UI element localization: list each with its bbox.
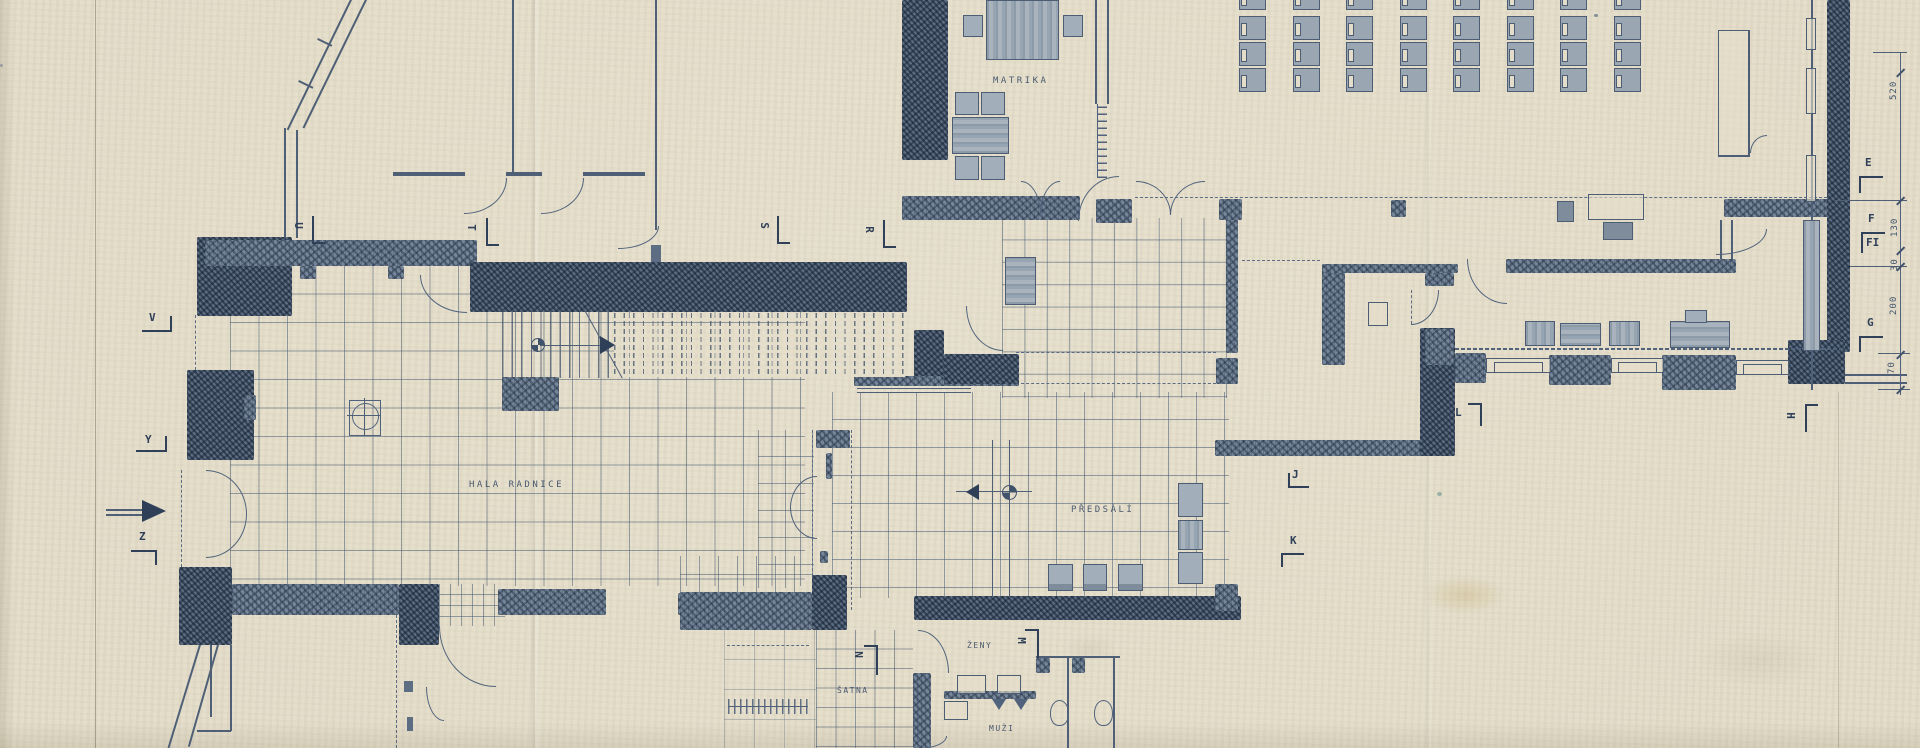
hall-seat-r3-c1	[1293, 68, 1320, 92]
staircase-steps-solid	[502, 310, 614, 378]
beam-dashed-line-vestibule-1	[1016, 352, 1216, 353]
coat-rail-ticks	[728, 699, 808, 714]
hall-seat-r2-c3	[1400, 42, 1427, 66]
section-marker-s-bracket-0	[777, 216, 779, 244]
room-label-hala: HALA RADNICE	[469, 480, 564, 490]
seat-backrest	[1402, 23, 1408, 36]
wall-hall-west-south-block	[179, 567, 232, 645]
hall-seat-r1-c0	[1239, 16, 1266, 40]
chair-matrika-3	[955, 156, 979, 180]
desk-office-2	[1670, 321, 1730, 348]
section-marker-n: N	[852, 651, 865, 658]
floor-vestibule-center	[1002, 218, 1227, 398]
door-arc-office-east	[1716, 229, 1767, 255]
room-label-satna: ŠATNA	[837, 686, 869, 695]
column-hall-circle	[352, 403, 379, 430]
corridor-line-2	[1009, 440, 1010, 598]
stool-predsali-2	[1083, 564, 1107, 591]
chair-matrika-1	[955, 92, 979, 115]
bench-office-2	[1609, 321, 1640, 346]
section-marker-v: V	[149, 311, 156, 324]
seat-backrest	[1348, 75, 1354, 88]
wall-line-rooms-south-b	[506, 172, 542, 176]
hall-seat-r2-c0	[1239, 42, 1266, 66]
stool-matrika-left	[963, 15, 983, 37]
section-marker-n-bracket-1	[864, 645, 877, 647]
hall-seat-r1-c6	[1560, 16, 1587, 40]
dimension-value-200: 200	[1889, 296, 1899, 315]
wall-window-pier-3	[1662, 355, 1736, 390]
wall-pier-hall-south	[1391, 200, 1406, 217]
wall-line-wc-stall-1	[1067, 658, 1069, 748]
wall-line-matrika-east-b	[1107, 0, 1109, 104]
section-marker-y-bracket-1	[165, 436, 167, 451]
hall-seat-r3-c4	[1453, 68, 1480, 92]
hall-seat-r2-c5	[1507, 42, 1534, 66]
seat-backrest	[1509, 75, 1515, 88]
door-leaf-dashed-wcroom	[1411, 290, 1412, 324]
podium-bighall	[1718, 30, 1750, 157]
section-marker-e: E	[1865, 156, 1872, 169]
section-marker-f: F	[1868, 212, 1875, 225]
chair-matrika-2	[981, 92, 1005, 115]
window-frame-east-2	[1806, 68, 1816, 114]
armchair-predsali-bottom	[1178, 552, 1203, 584]
hall-seat-r3-c5	[1507, 68, 1534, 92]
section-marker-e-bracket-0	[1859, 176, 1883, 178]
bench-vestibule	[1005, 257, 1036, 305]
section-marker-z-bracket-0	[131, 550, 157, 552]
section-marker-l: L	[1455, 406, 1462, 419]
wall-line-matrika-east-a	[1095, 0, 1097, 104]
chair-office	[1685, 310, 1707, 323]
seat-backrest	[1295, 0, 1301, 6]
ink-speck	[1594, 14, 1598, 17]
wall-satna-north-step	[812, 575, 847, 630]
wall-office-north	[1506, 259, 1736, 273]
wall-predsali-north-east	[944, 354, 1019, 384]
section-marker-r-bracket-0	[883, 220, 885, 248]
wall-line-south-facade-b	[1845, 382, 1907, 384]
seat-backrest	[1402, 75, 1408, 88]
wall-predsali-east-pier	[1215, 584, 1238, 611]
door-arc-upper-room-a	[464, 178, 507, 214]
hall-seat-r2-c1	[1293, 42, 1320, 66]
section-marker-t: T	[465, 224, 478, 231]
column-hall-cross-v	[364, 398, 365, 436]
seat-backrest	[1295, 75, 1301, 88]
section-marker-m-bracket-1	[1025, 629, 1038, 631]
hall-seat-r0-c0	[1239, 0, 1266, 10]
section-marker-k-bracket-0	[1281, 553, 1304, 555]
section-marker-j-bracket-0	[1288, 486, 1309, 488]
ext-line-1	[1835, 200, 1907, 201]
seat-backrest	[1455, 0, 1461, 6]
seat-backrest	[1241, 23, 1247, 36]
seat-backrest	[1348, 23, 1354, 36]
ext-line-top	[1873, 52, 1907, 53]
stool-predsali-3	[1118, 564, 1143, 591]
wall-wcroom-block-2	[1425, 329, 1454, 365]
door-arc-vestibule-nw-a	[1021, 181, 1041, 215]
window-sill-2-inner	[1618, 362, 1657, 373]
seat-backrest	[1562, 0, 1568, 6]
wall-hall-north	[205, 240, 477, 266]
wall-pier-hall-north-1	[300, 266, 316, 279]
section-marker-j: J	[1292, 468, 1299, 481]
seat-backrest	[1402, 0, 1408, 6]
wall-pier-below-stairs	[502, 377, 559, 411]
door-arc-room-below-hall	[426, 687, 444, 721]
section-marker-t-bracket-0	[486, 218, 488, 246]
hall-seat-r1-c3	[1400, 16, 1427, 40]
wall-vestibule-east	[1226, 199, 1238, 353]
bench-east-wall	[1803, 220, 1820, 351]
chair-bighall-south-1	[1557, 201, 1574, 222]
wall-line-rooms-south-c	[583, 172, 645, 176]
urinal-2	[1014, 699, 1028, 710]
section-marker-h-bracket-1	[1805, 404, 1818, 406]
wall-window-pier-2	[1549, 355, 1611, 385]
wall-wcroom-block-1	[1425, 273, 1454, 286]
desk-office-1	[1560, 323, 1601, 346]
section-marker-k: K	[1290, 534, 1297, 547]
door-arc-bighall-east	[1750, 135, 1767, 153]
section-marker-y-bracket-0	[136, 450, 167, 452]
door-arc-vestibule-ne-b	[1170, 181, 1205, 215]
seat-backrest	[1509, 49, 1515, 62]
seat-backrest	[1509, 0, 1515, 6]
wall-line-room-divider	[512, 0, 514, 172]
ext-line-3	[1878, 353, 1910, 354]
radiator-ticks	[1097, 104, 1107, 178]
beam-dashed-line-hall-south	[1135, 197, 1827, 198]
seat-backrest	[1562, 75, 1568, 88]
chair-matrika-4	[981, 156, 1005, 180]
dimension-value-70: 70	[1887, 361, 1897, 374]
wall-satna-north	[680, 592, 812, 630]
seat-backrest	[1241, 0, 1247, 6]
room-label-predsali: PŘEDSÁLÍ	[1071, 505, 1134, 515]
wall-predsali-south	[914, 596, 1241, 620]
hall-seat-r0-c4	[1453, 0, 1480, 10]
toilet-2	[1094, 700, 1113, 726]
section-marker-k-bracket-1	[1281, 553, 1283, 567]
door-arc-matrika	[1078, 176, 1119, 221]
seat-backrest	[1295, 23, 1301, 36]
seat-backrest	[1509, 23, 1515, 36]
section-marker-y: Y	[145, 433, 152, 446]
seat-backrest	[1562, 23, 1568, 36]
wall-pier-corridor-2	[826, 453, 832, 479]
desk-matrika	[986, 0, 1059, 60]
wall-bighall-east	[1827, 0, 1850, 352]
hall-seat-r0-c5	[1507, 0, 1534, 10]
dashed-wall-line-corridor-2	[851, 430, 852, 610]
stain-speck-teal	[1437, 492, 1442, 496]
hall-seat-r1-c4	[1453, 16, 1480, 40]
section-marker-h-bracket-0	[1805, 404, 1807, 432]
wall-line-facade-inner	[303, 0, 367, 129]
seat-backrest	[1455, 49, 1461, 62]
dimension-line	[1900, 52, 1901, 395]
floor-predsali	[832, 392, 1229, 598]
seat-backrest	[1402, 49, 1408, 62]
table-matrika	[952, 117, 1009, 154]
armchair-predsali-top	[1178, 483, 1203, 517]
wall-line-west-upper	[284, 128, 286, 238]
floor-plan-sheet: (function(){ const data = JSON.parse(doc…	[0, 0, 1920, 748]
seat-backrest	[1348, 49, 1354, 62]
sink-muzi	[944, 701, 968, 720]
wall-pier-room-below	[404, 681, 413, 692]
dashed-opening-hall-west-lower	[181, 470, 182, 567]
hall-seat-r0-c2	[1346, 0, 1373, 10]
hall-seat-r0-c3	[1400, 0, 1427, 10]
hall-seat-r2-c7	[1614, 42, 1641, 66]
section-marker-u-bracket-0	[312, 216, 314, 244]
seat-backrest	[1616, 75, 1622, 88]
dimension-value-130: 130	[1890, 218, 1900, 237]
section-marker-g-bracket-1	[1859, 336, 1861, 352]
hall-seat-r0-c6	[1560, 0, 1587, 10]
section-marker-z: Z	[139, 530, 146, 543]
section-marker-r-bracket-1	[883, 246, 896, 248]
wall-line-wc-top	[1036, 656, 1120, 658]
section-marker-u-bracket-1	[312, 242, 325, 244]
wall-pier-room-below-2	[407, 717, 413, 731]
wall-hall-south-east-band	[1724, 199, 1835, 217]
dimension-value-520: 520	[1889, 81, 1899, 100]
lintel-line-predsali	[857, 388, 971, 389]
wall-window-pier-1	[1455, 353, 1486, 383]
bench-office-1	[1525, 321, 1555, 346]
sink-zeny-2	[997, 675, 1021, 694]
door-arc-office-west	[1467, 259, 1507, 304]
wall-jk-north	[1215, 440, 1452, 456]
hall-seat-r2-c6	[1560, 42, 1587, 66]
door-arc-zeny	[918, 630, 949, 673]
floor-satna-west	[724, 630, 816, 748]
section-marker-r: R	[863, 226, 876, 233]
wall-vestibule-east-bottom-block	[1216, 358, 1238, 384]
windowsill-wave-line	[1455, 348, 1845, 350]
hall-seat-r2-c4	[1453, 42, 1480, 66]
wall-line-room-sw-step	[197, 730, 231, 732]
seat-backrest	[1616, 49, 1622, 62]
door-arc-muzi	[918, 736, 947, 748]
paper-fold-line-left	[95, 0, 96, 748]
wall-line-sw-inner	[188, 645, 219, 747]
entrance-arrow-tail-a	[106, 509, 144, 511]
survey-point-symbol-1	[1002, 485, 1017, 500]
dashed-opening-hall-west-upper	[195, 315, 196, 370]
seat-backrest	[1295, 49, 1301, 62]
seat-backrest	[1241, 49, 1247, 62]
section-marker-m: M	[1015, 637, 1028, 644]
window-sill-1-inner	[1494, 362, 1543, 373]
wall-hall-south-1	[232, 584, 399, 615]
section-marker-z-bracket-1	[155, 550, 157, 565]
door-arc-recess	[439, 626, 496, 687]
section-marker-e-bracket-1	[1859, 176, 1861, 193]
window-sill-3-inner	[1743, 364, 1782, 375]
wall-line-room-sw-a	[210, 645, 212, 717]
corridor-line-1	[992, 440, 993, 598]
lintel-line-predsali-2	[857, 392, 971, 393]
room-label-muzi: MUŽI	[989, 724, 1014, 733]
section-marker-l-bracket-1	[1480, 403, 1482, 426]
seat-backrest	[1455, 23, 1461, 36]
door-arc-vestibule-ne-a	[1136, 181, 1171, 215]
section-marker-fi: FI	[1866, 236, 1879, 249]
wall-hall-south-2	[498, 589, 606, 615]
wall-line-facade-outer	[287, 0, 352, 130]
wall-stair-north-band	[470, 262, 907, 312]
wall-line-south-facade-a	[1845, 374, 1907, 376]
stair-direction-arrow	[600, 336, 615, 354]
urinal-1	[992, 699, 1006, 710]
section-marker-v-bracket-0	[142, 330, 172, 332]
wall-pier-hall-west	[244, 395, 256, 420]
window-frame-east-1	[1806, 18, 1816, 50]
hall-seat-r1-c7	[1614, 16, 1641, 40]
staircase-walk-line	[540, 345, 600, 346]
predsali-arrow	[966, 484, 979, 500]
seat-backrest	[1455, 75, 1461, 88]
sink-wcroom	[1368, 302, 1388, 326]
wall-vestibule-east-top-block	[1219, 199, 1242, 220]
hall-seat-r1-c1	[1293, 16, 1320, 40]
satna-counter-dashed	[727, 645, 809, 646]
section-marker-n-bracket-0	[876, 645, 878, 675]
ext-line-4	[1878, 389, 1910, 390]
chair-bighall-south-2	[1603, 222, 1633, 240]
seat-backrest	[1241, 75, 1247, 88]
wall-pier-door-north	[651, 245, 661, 262]
wall-matrika-west	[902, 0, 948, 160]
hall-seat-r0-c1	[1293, 0, 1320, 10]
ink-speck	[0, 64, 3, 67]
wall-pier-wc-2	[1072, 658, 1085, 673]
door-arc-vestibule-nw-b	[1040, 181, 1060, 215]
seat-backrest	[1616, 0, 1622, 6]
section-marker-h: H	[1784, 412, 1797, 419]
section-marker-u: U	[292, 222, 305, 229]
entrance-arrow-tail-b	[106, 514, 144, 516]
wall-line-rooms-south-a	[393, 172, 465, 176]
section-marker-f-bracket-0	[1861, 232, 1885, 234]
wall-line-sw-outer	[168, 645, 201, 748]
hall-seat-r1-c2	[1346, 16, 1373, 40]
hall-seat-r1-c5	[1507, 16, 1534, 40]
section-marker-j-bracket-1	[1288, 473, 1290, 487]
dashed-wall-room-below-hall	[396, 615, 397, 748]
paper-crease-lower-right	[1838, 392, 1839, 748]
hall-seat-r3-c2	[1346, 68, 1373, 92]
room-label-matrika: MATRIKA	[993, 76, 1048, 86]
section-marker-g: G	[1867, 316, 1874, 329]
wall-wcroom-west	[1322, 264, 1345, 365]
door-arc-vestibule-west	[966, 306, 1003, 351]
wall-pier-wc-1	[1036, 658, 1050, 673]
toilet-1	[1050, 700, 1069, 726]
survey-point-symbol-0	[531, 338, 545, 352]
stool-matrika-right	[1063, 15, 1083, 37]
section-marker-t-bracket-1	[486, 244, 499, 246]
wall-line-room-sw-b	[230, 645, 232, 731]
section-marker-v-bracket-1	[170, 316, 172, 331]
dimension-value-30: 30	[1890, 258, 1900, 271]
door-arc-upper-room-b	[541, 178, 584, 214]
staircase-dash-mask	[614, 313, 905, 377]
table-predsali	[1178, 520, 1203, 550]
hall-seat-r0-c7	[1614, 0, 1641, 10]
wall-pier-corridor-3	[820, 551, 828, 563]
window-frame-east-3	[1806, 155, 1816, 202]
wall-hall-south-block	[399, 584, 439, 645]
section-marker-f-bracket-1	[1861, 232, 1863, 253]
hall-seat-r3-c3	[1400, 68, 1427, 92]
seat-backrest	[1562, 49, 1568, 62]
sink-zeny-1	[957, 675, 986, 694]
section-marker-g-bracket-0	[1859, 336, 1883, 338]
beam-dashed-line-vestibule-2	[1016, 383, 1216, 384]
hall-seat-r3-c7	[1614, 68, 1641, 92]
floor-door-recess	[439, 584, 505, 626]
section-marker-s-bracket-1	[777, 242, 790, 244]
section-marker-m-bracket-0	[1037, 629, 1039, 658]
hall-seat-r3-c6	[1560, 68, 1587, 92]
wall-pier-corridor-1	[816, 430, 850, 448]
door-arc-wcroom	[1411, 290, 1439, 325]
hall-seat-r3-c0	[1239, 68, 1266, 92]
wall-line-northeast-edge	[655, 0, 657, 230]
stool-predsali-1	[1048, 564, 1073, 591]
seat-backrest	[1348, 0, 1354, 6]
floor-corridor-to-satna	[680, 556, 812, 594]
table-bighall-south	[1588, 194, 1644, 220]
hall-seat-r2-c2	[1346, 42, 1373, 66]
wall-wcroom-north	[1322, 264, 1458, 273]
seat-backrest	[1616, 23, 1622, 36]
wall-pier-hall-north-2	[388, 266, 404, 279]
wall-line-wc-stall-2	[1113, 658, 1115, 748]
section-marker-s: S	[758, 222, 771, 229]
room-label-zeny: ŽENY	[967, 641, 992, 650]
beam-dashed-line	[1242, 260, 1320, 261]
entrance-arrow	[142, 500, 166, 522]
